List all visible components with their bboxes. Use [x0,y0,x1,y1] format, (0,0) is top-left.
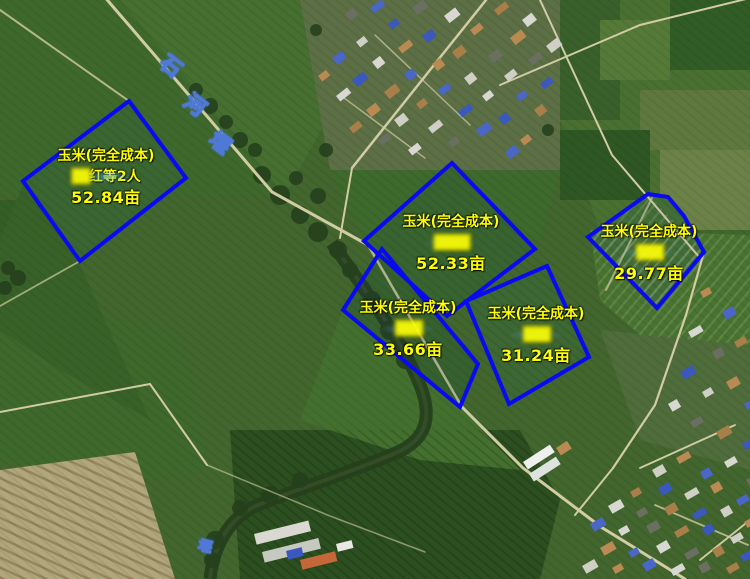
parcel-5-polygon[interactable] [588,194,704,308]
parcel-overlay-layer [0,0,750,579]
parcel-1-polygon[interactable] [23,101,186,261]
satellite-map-viewport[interactable]: 玉米(完全成本)██红等2人52.84亩玉米(完全成本)████52.33亩玉米… [0,0,750,579]
